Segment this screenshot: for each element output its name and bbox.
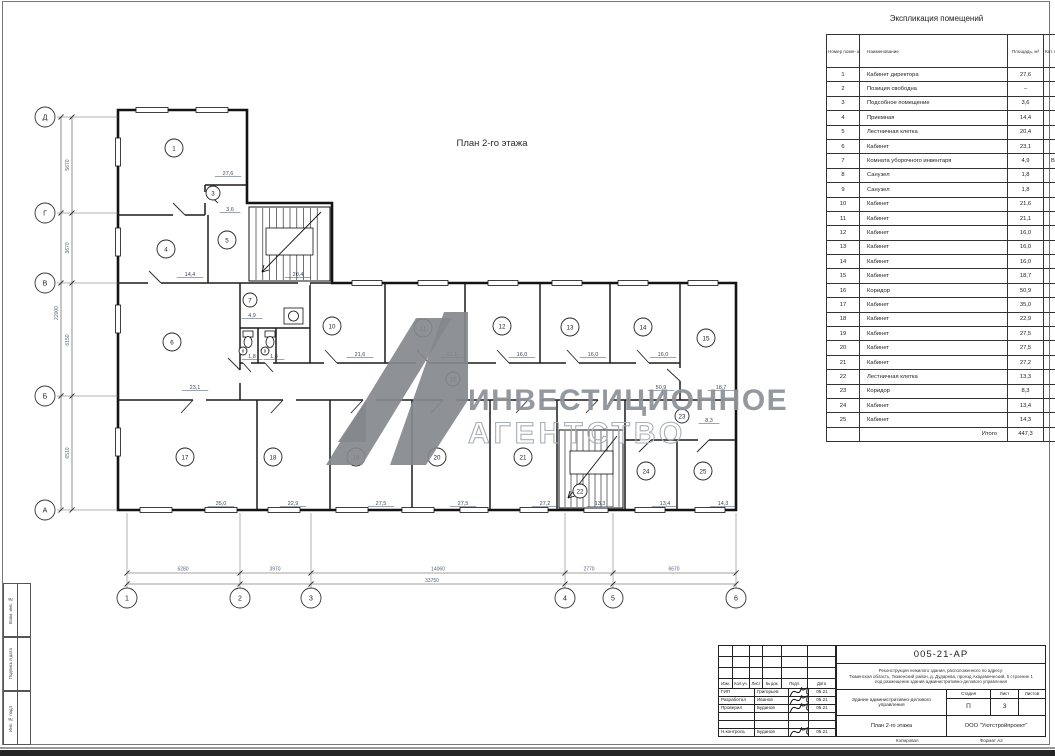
interior-walls: [118, 185, 736, 510]
title-block-main: 005-21-АР Реконструкция нежилого здания,…: [837, 646, 1045, 736]
room-number: 1: [172, 145, 176, 152]
explication-row: 24Кабинет13,4: [827, 398, 1055, 412]
room-number: 14: [640, 324, 647, 331]
axis-label: Б: [43, 394, 48, 401]
window-edge-line: [0, 747, 1055, 749]
explication-row: 25Кабинет14,3: [827, 413, 1055, 427]
signature-row: Н.контрольБуданов05.21: [719, 728, 836, 736]
window-bottom-bar: [0, 750, 1055, 756]
room-number: 24: [643, 468, 650, 475]
dimension-text: 6510: [65, 447, 71, 458]
room-area-label: 27,2: [540, 501, 551, 507]
col-room-area: Площадь, м²: [1008, 35, 1044, 68]
explication-title: Экспликация помещений: [826, 14, 1047, 23]
axis-label: 6: [734, 596, 738, 603]
axis-label: В: [43, 281, 48, 288]
dimension-total: 33750: [425, 578, 439, 584]
frame-stamp-inv: Инв. № подл.: [3, 691, 31, 745]
explication-row: 12Кабинет16,0: [827, 226, 1055, 240]
outer-walls: [118, 110, 736, 510]
room-number: 19: [353, 454, 360, 461]
room-number: 22: [577, 488, 584, 495]
room-area-label: 3,6: [226, 207, 234, 213]
explication-row: 23Коридор8,3: [827, 384, 1055, 398]
room-area-label: 50,9: [656, 385, 667, 391]
dimension-text: 6280: [177, 567, 188, 573]
explication-row: 20Кабинет27,5: [827, 341, 1055, 355]
room-number: 13: [567, 324, 574, 331]
room-area-label: 1,8: [270, 354, 278, 360]
room-area-label: 14,4: [185, 272, 196, 278]
company-name: ООО "Уютстройпроект": [947, 716, 1045, 736]
change-table: [719, 646, 836, 679]
drawing-name: План 2-го этажа: [837, 716, 947, 736]
room-number: 16: [450, 376, 457, 383]
room-number: 18: [270, 454, 277, 461]
total-area: 447,3: [1008, 427, 1044, 441]
room-area-label: 16,0: [588, 352, 599, 358]
project-description: Реконструкция нежилого здания, расположе…: [837, 664, 1045, 690]
explication-row: 5Лестничная клетка20,4: [827, 125, 1055, 139]
explication-row: 9Санузел1,8: [827, 183, 1055, 197]
axis-label: 1: [125, 596, 129, 603]
room-number: 25: [700, 468, 707, 475]
room-area-label: 16,0: [517, 352, 528, 358]
room-number: 11: [420, 325, 427, 332]
dimension-text: 3670: [65, 242, 71, 253]
dimension-text: 2770: [583, 567, 594, 573]
axis-label: Д: [43, 115, 48, 122]
room-number: 23: [679, 413, 686, 420]
axis-label: 5: [611, 596, 615, 603]
room-area-label: 27,5: [458, 501, 469, 507]
sheets-value: [1019, 698, 1045, 715]
room-number: 20: [434, 454, 441, 461]
explication-row: 11Кабинет21,1: [827, 211, 1055, 225]
staircase-2: [559, 430, 623, 508]
explication-row: 10Кабинет21,6: [827, 197, 1055, 211]
toilet-fixture: [243, 331, 275, 348]
explication-row: 22Лестничная клетка13,3: [827, 370, 1055, 384]
dimension-text: 3970: [269, 567, 280, 573]
room-area-label: 27,5: [376, 501, 387, 507]
room-area-label: 22,9: [288, 501, 299, 507]
room-number: 7: [248, 297, 252, 304]
title-block-signatures: Изм. Кол.уч. Лист № док. Подп. Дата ГИПГ…: [719, 646, 837, 736]
col-room-number: Номер поме- щения: [827, 35, 860, 68]
explication-row: 21Кабинет27,2: [827, 355, 1055, 369]
object-name: Здание административно-делового управлен…: [837, 690, 947, 715]
room-number: 5: [225, 237, 229, 244]
room-area-label: 18,7: [716, 385, 727, 391]
room-area-label: 1,8: [248, 354, 256, 360]
room-number: 3: [211, 190, 215, 197]
windows: [116, 108, 726, 513]
title-block-footer: Копировал Формат А2: [718, 738, 1046, 746]
room-number: 15: [703, 335, 710, 342]
room-area-label: 13,3: [595, 501, 606, 507]
explication-row: 6Кабинет23,1: [827, 139, 1055, 153]
explication-row: 14Кабинет16,0: [827, 255, 1055, 269]
room-number: 17: [182, 454, 189, 461]
room-area-label: 20,4: [293, 272, 304, 278]
floor-plan: 1345678910111213141516171819202122232425…: [0, 0, 810, 650]
frame-stamp-label: Инв. № подл.: [4, 692, 17, 744]
staircase-1: [249, 207, 330, 281]
room-number: 4: [164, 246, 168, 253]
axis-label: А: [43, 508, 48, 515]
explication-row: 15Кабинет18,7: [827, 269, 1055, 283]
room-area-label: 21,1: [447, 352, 458, 358]
room-area-label: 35,0: [216, 501, 227, 507]
plan-title: План 2-го этажа: [412, 138, 572, 149]
dimension-text: 6150: [65, 334, 71, 345]
col-room-category: Кат. поме- щения: [1044, 35, 1055, 68]
sheet-value: 3: [991, 698, 1019, 715]
explication-row: 17Кабинет35,0: [827, 298, 1055, 312]
axis-label: Г: [43, 211, 47, 218]
axis-label: 2: [238, 596, 242, 603]
stage-grid: Стадия Лист Листов П 3: [947, 690, 1045, 715]
explication-row: 19Кабинет27,5: [827, 327, 1055, 341]
explication-row: 8Санузел1,8: [827, 168, 1055, 182]
room-area-label: 16,0: [658, 352, 669, 358]
room-area-label: 4,9: [248, 313, 256, 319]
room-area-label: 21,6: [355, 352, 366, 358]
explication-row: 4Приемная14,4: [827, 111, 1055, 125]
axis-label: 4: [563, 596, 567, 603]
document-number: 005-21-АР: [837, 646, 1045, 664]
room-area-label: 8,3: [705, 418, 713, 424]
explication-row: 1Кабинет директора27,6: [827, 68, 1055, 82]
room-number: 12: [499, 323, 506, 330]
total-label: Итого: [860, 427, 1008, 441]
stage-value: П: [947, 698, 991, 715]
room-area-label: 13,4: [660, 501, 671, 507]
explication-row: 2Позиция свободна–: [827, 82, 1055, 96]
room-area-label: 14,3: [718, 501, 729, 507]
title-block: Изм. Кол.уч. Лист № док. Подп. Дата ГИПГ…: [718, 645, 1046, 737]
room-number: 21: [520, 454, 527, 461]
explication-total-row: Итого 447,3: [827, 427, 1055, 441]
format-label: Формат А2: [980, 738, 1003, 743]
room-number: 6: [170, 339, 174, 346]
explication-row: 18Кабинет22,9: [827, 312, 1055, 326]
dimension-text: 5670: [65, 159, 71, 170]
explication-table: Экспликация помещений Номер поме- щения …: [826, 14, 1047, 442]
explication-row: 13Кабинет16,0: [827, 240, 1055, 254]
col-room-name: Наименование: [860, 35, 1008, 68]
room-area-label: 23,1: [190, 385, 201, 391]
explication-row: 3Подсобное помещение3,6: [827, 96, 1055, 110]
explication-header-row: Номер поме- щения Наименование Площадь, …: [827, 35, 1055, 68]
dimension-total: 22000: [54, 306, 60, 320]
sink-fixture: [284, 308, 303, 324]
room-number: 10: [329, 323, 336, 330]
room-area-label: 27,6: [223, 171, 234, 177]
axis-label: 3: [309, 596, 313, 603]
drawing-sheet: Взам. инв. № Подпись и дата Инв. № подл.: [0, 0, 1055, 756]
explication-row: 7Комната уборочного инвентаря4,9В4: [827, 154, 1055, 168]
dimension-text: 14060: [431, 567, 445, 573]
explication-row: 16Коридор50,9: [827, 283, 1055, 297]
dimension-text: 6670: [668, 567, 679, 573]
copied-label: Копировал: [896, 738, 919, 743]
